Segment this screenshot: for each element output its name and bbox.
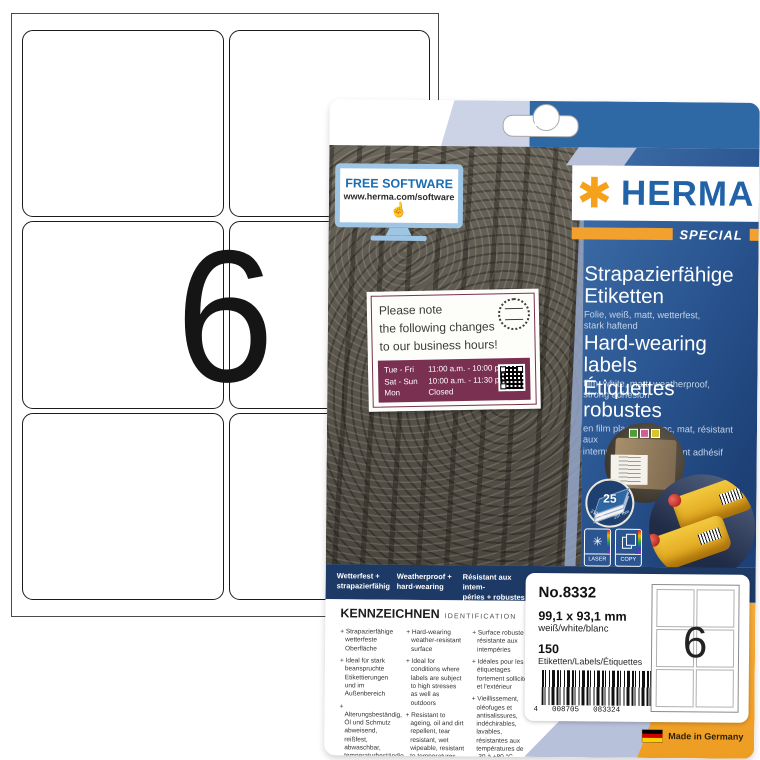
product-subtitle-de: Folie, weiß, matt, wetterfest, stark haf… [584, 309, 750, 333]
product-title-de: Strapazierfähige Etiketten Folie, weiß, … [584, 263, 751, 333]
herma-wordmark: HERMA [621, 173, 755, 214]
ean-group1: 008705 [552, 706, 579, 714]
package-top-band [329, 99, 759, 149]
german-flag-icon [642, 730, 662, 742]
label-count-caption: Etiketten/Labels/Étiquettes [538, 656, 658, 667]
special-stripe: SPECIAL [572, 226, 759, 242]
feature-fr: Résistant aux intem- péries + robustes [462, 572, 528, 602]
made-in-germany: Made in Germany [642, 730, 743, 743]
bullet-item: Ideal for conditions where labels are su… [406, 658, 465, 708]
feature-de: Wetterfest + strapazierfähig [337, 571, 397, 591]
bullet-item: Idéales pour les étiquetages fortement s… [472, 658, 531, 692]
bullet-item: Resistant to ageing, oil and dirt repell… [405, 712, 465, 759]
canister-photo-circle [649, 474, 756, 581]
label-color: weiß/white/blanc [538, 623, 658, 635]
hand-cursor-icon: ☝ [389, 202, 408, 220]
bullet-item: Ideal für stark beanspruchte Etikettieru… [340, 657, 399, 699]
label-cell [22, 30, 224, 217]
mini-sheet-number: 6 [652, 621, 738, 666]
bullets-de: Strapazierfähige wetterfeste Oberfläche … [339, 628, 399, 759]
bullet-item: Strapazierfähige wetterfeste Oberfläche [340, 628, 399, 653]
herma-asterisk-icon: ✱ [577, 172, 613, 214]
qr-code [498, 364, 526, 392]
made-in-text: Made in Germany [668, 731, 743, 742]
ean-barcode: 4 008705 083324 [534, 670, 656, 715]
feature-en: Weatherproof + hard-wearing [397, 572, 459, 592]
bullet-item: Vieillissement, oléofuges et antisalissu… [471, 696, 531, 759]
product-package: ✱ HERMA SPECIAL Strapazierfähige Etikett… [324, 99, 760, 759]
free-software-monitor: FREE SOFTWARE www.herma.com/software ☝ [335, 163, 464, 241]
label-count: 150 [538, 642, 658, 657]
ean-group2: 083324 [593, 706, 620, 714]
mini-sheet-diagram: 6 [651, 584, 740, 713]
product-info-panel: No.8332 99,1 x 93,1 mm weiß/white/blanc … [524, 573, 749, 723]
sheet-count: 25 [587, 491, 632, 505]
label-cell [22, 413, 224, 600]
herma-logo: ✱ HERMA [572, 165, 759, 222]
bullet-item: Surface robuste et résistante aux intemp… [472, 629, 531, 654]
free-software-title: FREE SOFTWARE [343, 176, 455, 191]
ean-prefix: 4 [534, 706, 539, 714]
identification-subheading: IDENTIFICATION [445, 613, 517, 621]
business-hours-label: Please note the following changes to our… [367, 289, 541, 412]
special-label: SPECIAL [679, 227, 742, 243]
bullets-en: Hard-wearing weather-resistant surface I… [405, 629, 465, 759]
printer-compatibility-icons: ✳ LASER COPY [584, 528, 642, 567]
article-number: No.8332 [538, 584, 658, 602]
bullet-item: Hard-wearing weather-resistant surface [406, 629, 465, 654]
laser-icon: ✳ LASER [584, 528, 611, 566]
copy-icon: COPY [615, 529, 642, 567]
hours-schedule: Tue - Fri 11:00 a.m. - 10:00 p.m. Sat - … [378, 358, 531, 403]
bullet-item: Alterungsbeständig, Öl und Schmutz abwei… [339, 703, 399, 759]
bullets-fr: Surface robuste et résistante aux intemp… [471, 629, 531, 758]
identification-heading: KENNZEICHNEN [340, 606, 439, 621]
sheet-count-badge: 25 210 mm 297 mm [585, 478, 634, 527]
label-size: 99,1 x 93,1 mm [538, 609, 658, 624]
